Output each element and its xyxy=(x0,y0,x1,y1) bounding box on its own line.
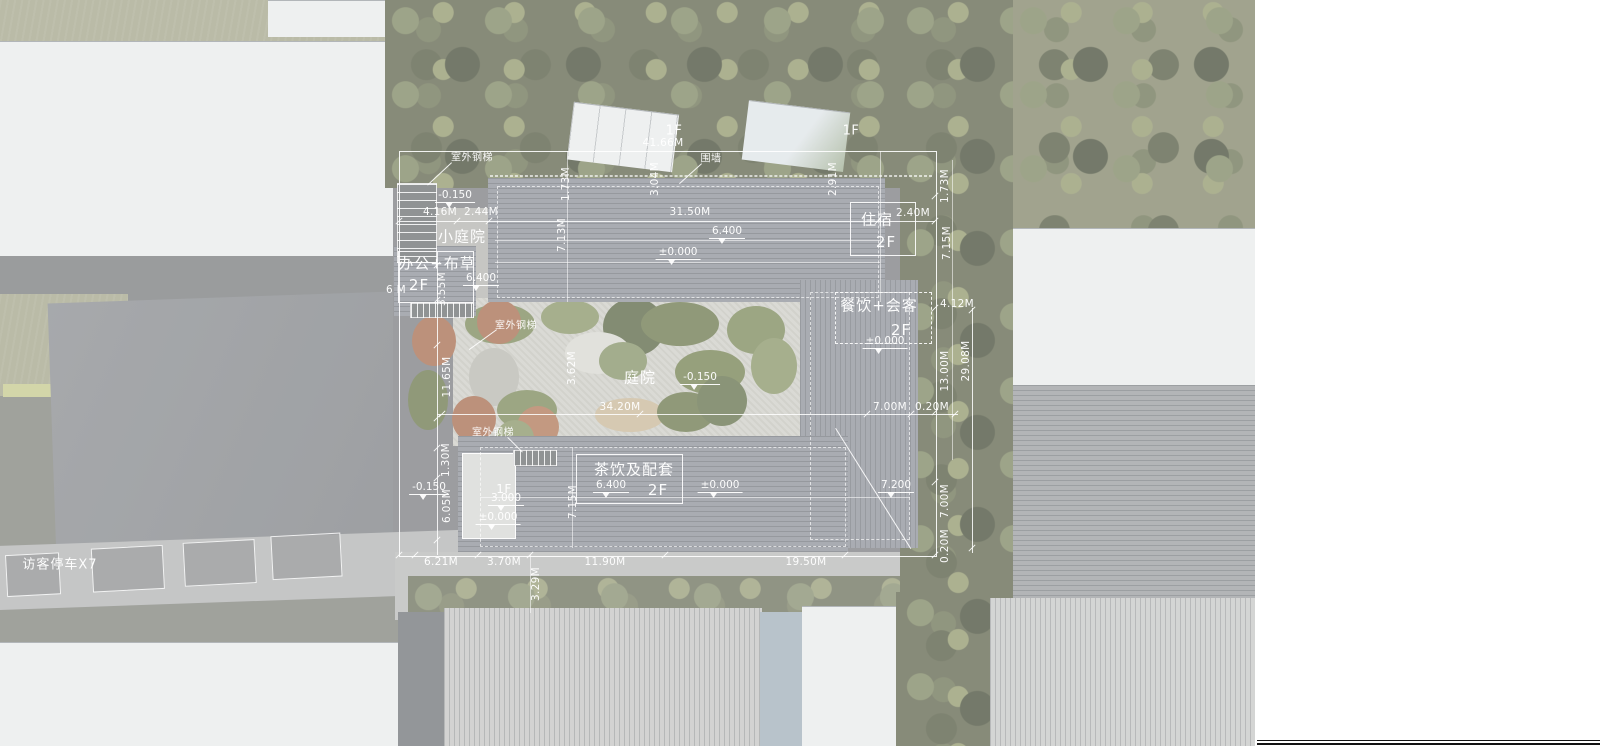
dimension-label: 6 M xyxy=(386,284,406,296)
dimension-label: 31.50M xyxy=(670,206,711,218)
label-courtyard: 庭院 xyxy=(624,367,656,388)
label-small-courtyard: 小庭院 xyxy=(438,226,486,247)
elevation-marker: ±0.000 xyxy=(863,335,908,349)
dimension-label: 19.50M xyxy=(786,556,827,568)
dimension-label: 3.62M xyxy=(566,351,578,385)
parking-space xyxy=(91,545,165,593)
elevation-marker: ±0.000 xyxy=(656,246,701,260)
dimension-label: 7.15M xyxy=(941,226,953,260)
eave-outline-north xyxy=(497,186,879,298)
dimension-label: 0.20M xyxy=(939,529,951,563)
dimension-label: 3.29M xyxy=(530,567,542,601)
elevation-marker: ±0.000 xyxy=(476,511,521,525)
elevation-marker: 6.400 xyxy=(593,479,629,493)
label-outbuilding-1f-east: 1F xyxy=(843,124,860,139)
dimension-label: 7.00M xyxy=(939,484,951,518)
label-visitor-parking-x7: 访客停车X7 xyxy=(22,554,97,573)
sheet-border-line-thick xyxy=(1257,743,1600,745)
label-outdoor-steel-stair-2: 室外钢梯 xyxy=(495,317,537,332)
dimension-label: 3.04M xyxy=(649,162,661,196)
dimension-label: 2.91M xyxy=(827,162,839,196)
drawing-annotations: 小庭院办公+布草2F住宿2F餐饮+会客2F庭院茶饮及配套2F访客停车X7室外钢梯… xyxy=(0,0,1255,746)
elevation-marker: 7.200 xyxy=(878,479,914,493)
elevation-marker: -0.150 xyxy=(680,371,720,385)
dimension-label: 3.70M xyxy=(487,556,521,568)
parking-space xyxy=(270,533,342,581)
dimension-label: 34.20M xyxy=(600,401,641,413)
dimension-label: 4.12M xyxy=(940,298,974,310)
dimension-label: 1.73M xyxy=(560,167,572,201)
elevation-marker: ±0.000 xyxy=(698,479,743,493)
dimension-label: 1.30M xyxy=(440,443,452,477)
dimension-label: 3.55M xyxy=(436,272,448,306)
label-tea-amenities: 茶饮及配套 xyxy=(594,459,674,480)
elevation-marker: 6.400 xyxy=(463,272,499,286)
elevation-marker: 6.400 xyxy=(709,225,745,239)
site-plan-screenshot: 小庭院办公+布草2F住宿2F餐饮+会客2F庭院茶饮及配套2F访客停车X7室外钢梯… xyxy=(0,0,1600,746)
fence-line xyxy=(490,175,932,177)
elevation-marker: -0.150 xyxy=(435,189,475,203)
label-enclosure-wall: 围墙 xyxy=(701,150,722,165)
dimension-label: 0.20M xyxy=(915,401,949,413)
dimension-label: 29.08M xyxy=(960,341,972,382)
dimension-label: 2.40M xyxy=(896,207,930,219)
dimension-label: 2.44M xyxy=(464,206,498,218)
label-lodging-floor: 2F xyxy=(876,233,896,251)
label-outdoor-steel-stair-3: 室外钢梯 xyxy=(472,424,514,439)
dimension-label: 7.15M xyxy=(567,485,579,519)
dimension-label: 11.65M xyxy=(441,357,453,398)
dimension-label: 11.90M xyxy=(585,556,626,568)
dimension-label: 13.00M xyxy=(939,351,951,392)
dimension-label: 41.66M xyxy=(643,137,684,149)
elevation-marker: 3.000 xyxy=(488,492,524,506)
elevation-marker: -0.150 xyxy=(409,481,449,495)
label-outdoor-steel-stair-1: 室外钢梯 xyxy=(451,149,493,164)
dimension-label: 7.00M xyxy=(873,401,907,413)
sheet-margin xyxy=(1255,0,1600,746)
dimension-line-east-outer xyxy=(972,308,973,553)
dimension-label: 7.13M xyxy=(556,218,568,252)
label-lodging: 住宿 xyxy=(861,209,893,230)
label-dining-reception: 餐饮+会客 xyxy=(840,295,918,316)
label-office-linen-floor: 2F xyxy=(409,276,429,294)
dimension-label: 6.21M xyxy=(424,556,458,568)
parking-space xyxy=(183,539,257,587)
dimension-label: 1.73M xyxy=(939,169,951,203)
sheet-border-line-thin xyxy=(1257,740,1600,741)
label-tea-amenities-floor: 2F xyxy=(648,481,668,499)
